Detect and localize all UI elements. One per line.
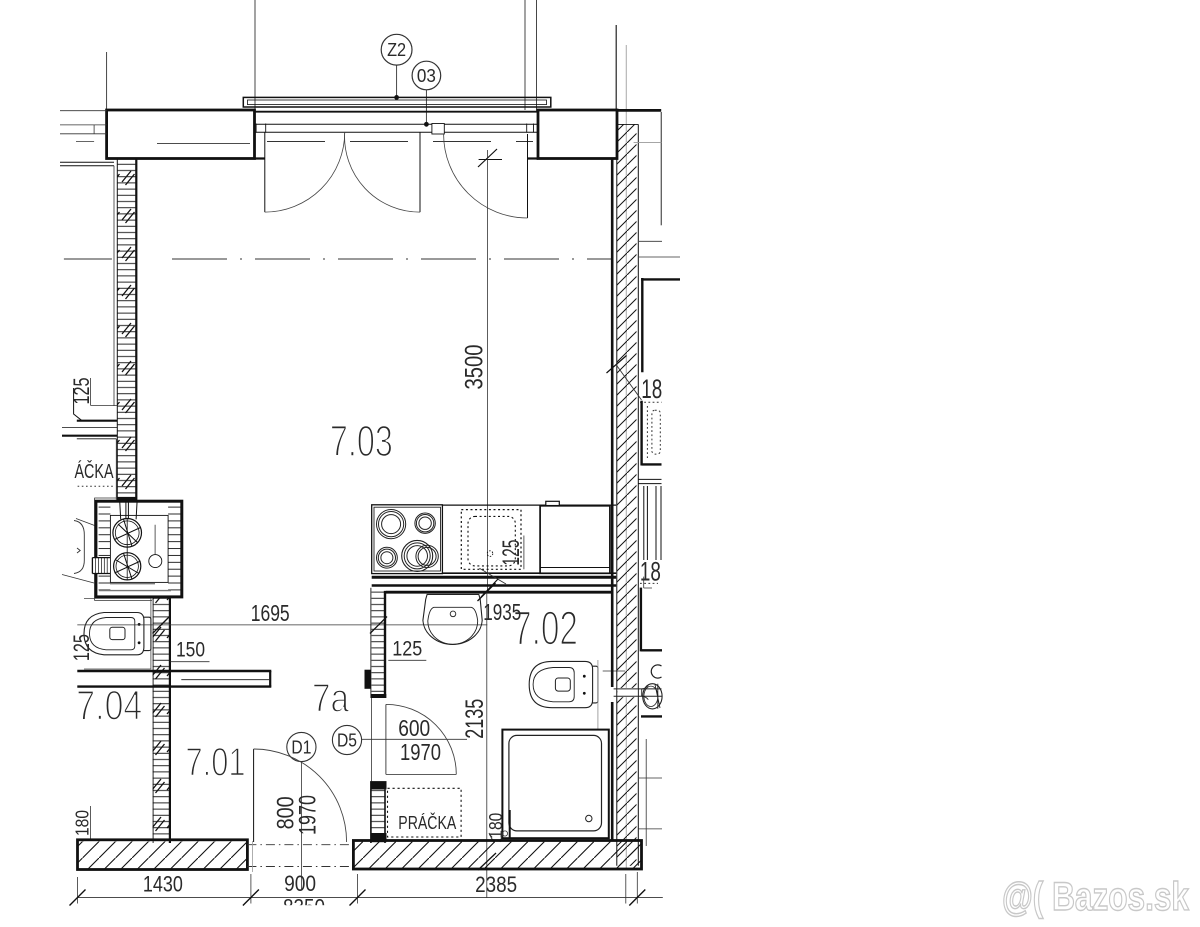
svg-text:7.01: 7.01: [186, 740, 246, 784]
svg-text:2385: 2385: [475, 872, 517, 897]
svg-text:1970: 1970: [295, 795, 322, 835]
svg-text:18: 18: [641, 374, 662, 404]
svg-text:1970: 1970: [400, 739, 441, 765]
svg-text:Z2: Z2: [387, 40, 406, 60]
svg-text:125: 125: [392, 636, 422, 660]
svg-text:2135: 2135: [461, 699, 489, 739]
svg-text:PRÁČKA: PRÁČKA: [398, 812, 456, 833]
svg-text:03: 03: [417, 66, 436, 86]
svg-text:18: 18: [640, 557, 661, 587]
svg-text:125: 125: [69, 634, 94, 661]
svg-text:150: 150: [176, 638, 205, 662]
svg-text:7a: 7a: [312, 676, 350, 720]
svg-text:1935: 1935: [483, 599, 521, 625]
svg-text:7.04: 7.04: [76, 682, 142, 729]
svg-text:125: 125: [498, 540, 525, 566]
svg-text:7.03: 7.03: [330, 417, 393, 466]
svg-text:@( Bazos.sk: @( Bazos.sk: [1002, 875, 1190, 919]
svg-text:D1: D1: [291, 738, 311, 758]
svg-text:3500: 3500: [461, 345, 489, 390]
svg-text:1695: 1695: [251, 600, 290, 626]
svg-text:ÁČKA: ÁČKA: [75, 460, 114, 483]
svg-text:900: 900: [284, 871, 316, 896]
svg-text:D5: D5: [337, 731, 357, 751]
svg-text:1430: 1430: [143, 872, 183, 897]
svg-text:600: 600: [398, 715, 430, 741]
svg-text:180: 180: [72, 810, 92, 836]
svg-text:7.02: 7.02: [513, 602, 578, 655]
